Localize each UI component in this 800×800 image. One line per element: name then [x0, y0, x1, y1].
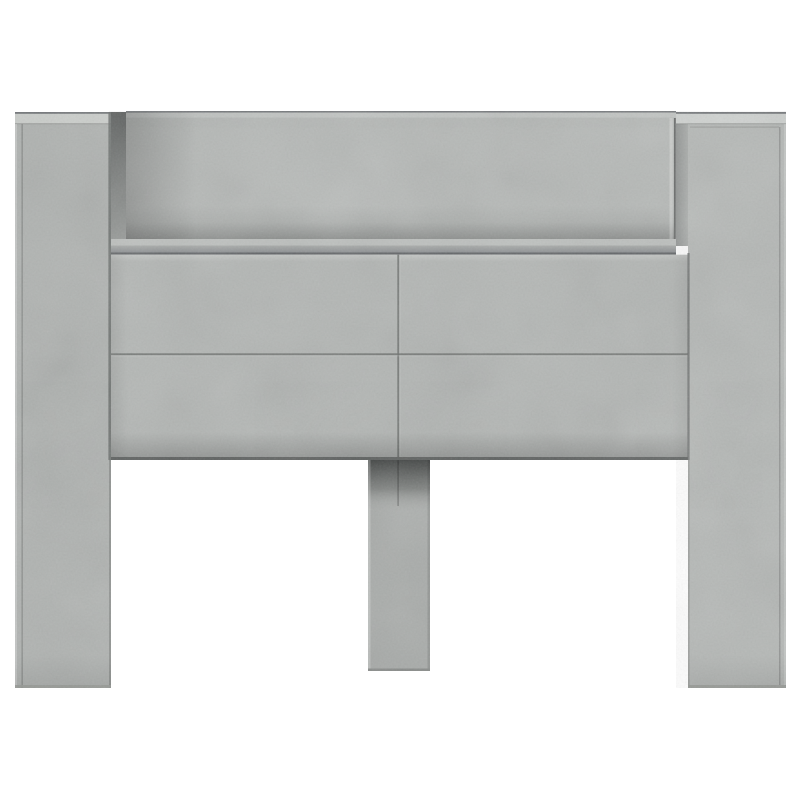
product-photo [0, 0, 800, 800]
headboard-cabinet-illustration [0, 0, 800, 800]
